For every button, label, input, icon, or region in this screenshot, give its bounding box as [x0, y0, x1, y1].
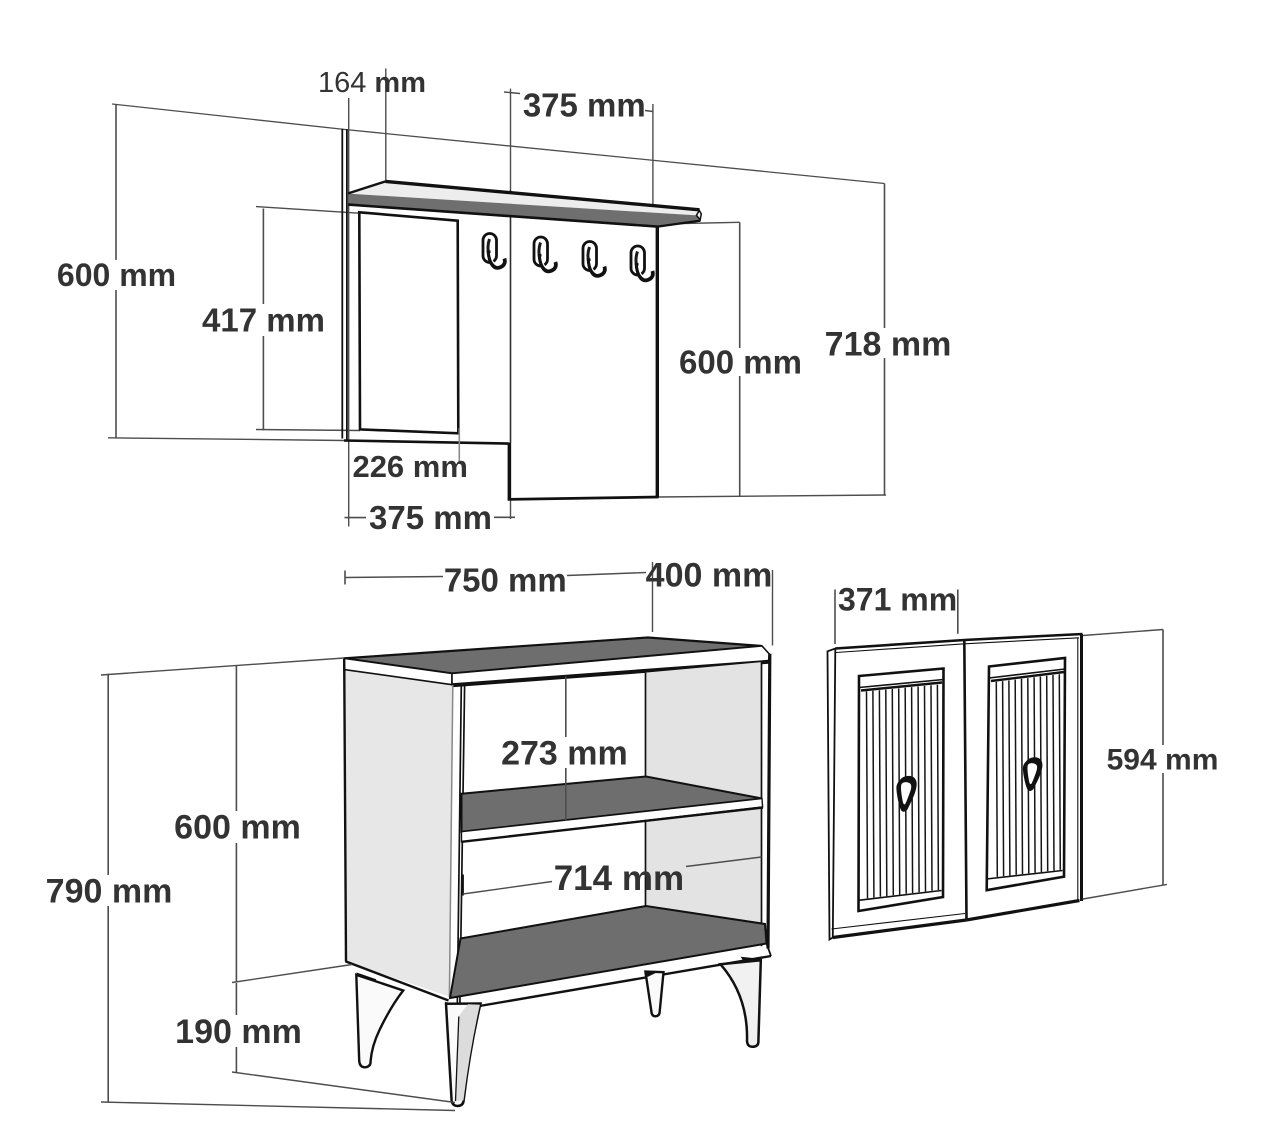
svg-text:375 mm: 375 mm [523, 87, 646, 124]
svg-text:718 mm: 718 mm [825, 326, 952, 364]
svg-text:273 mm: 273 mm [501, 735, 628, 773]
svg-text:371 mm: 371 mm [838, 582, 957, 618]
svg-text:164 mm: 164 mm [318, 67, 426, 99]
svg-text:375 mm: 375 mm [369, 499, 492, 536]
svg-text:790 mm: 790 mm [46, 873, 173, 911]
svg-text:190 mm: 190 mm [175, 1013, 302, 1051]
svg-text:417 mm: 417 mm [202, 302, 325, 339]
svg-text:400 mm: 400 mm [646, 557, 773, 595]
svg-text:226 mm: 226 mm [352, 449, 467, 484]
svg-text:600 mm: 600 mm [174, 809, 301, 847]
svg-text:600 mm: 600 mm [57, 257, 176, 293]
svg-text:600 mm: 600 mm [679, 344, 802, 381]
svg-text:594 mm: 594 mm [1107, 744, 1219, 777]
svg-text:714 mm: 714 mm [554, 859, 684, 898]
svg-text:750 mm: 750 mm [444, 562, 567, 599]
